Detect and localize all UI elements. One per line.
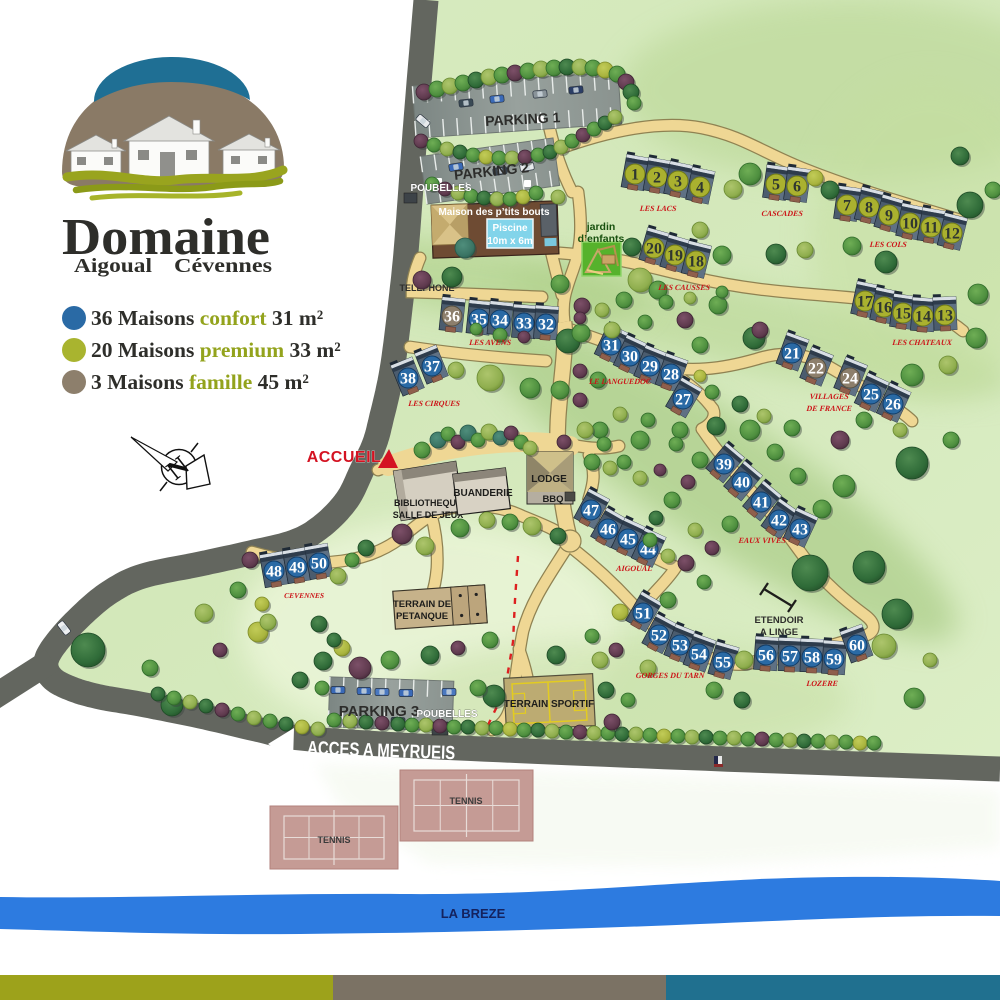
svg-text:32: 32 bbox=[538, 317, 554, 334]
svg-text:39: 39 bbox=[716, 457, 732, 474]
svg-text:LES CIRQUES: LES CIRQUES bbox=[407, 399, 461, 408]
svg-text:4: 4 bbox=[696, 180, 704, 197]
svg-text:24: 24 bbox=[842, 371, 858, 388]
svg-text:31: 31 bbox=[603, 338, 619, 355]
svg-text:POUBELLES: POUBELLES bbox=[410, 183, 471, 194]
svg-text:5: 5 bbox=[772, 177, 780, 194]
svg-text:20 Maisons premium 33 m²: 20 Maisons premium 33 m² bbox=[91, 338, 341, 362]
svg-text:DE FRANCE: DE FRANCE bbox=[805, 404, 852, 413]
svg-text:Piscine: Piscine bbox=[492, 223, 527, 234]
svg-text:BUANDERIE: BUANDERIE bbox=[453, 488, 513, 499]
svg-text:TERRAIN SPORTIF: TERRAIN SPORTIF bbox=[504, 699, 595, 710]
svg-text:LES AVENS: LES AVENS bbox=[468, 338, 512, 347]
svg-text:TENNIS: TENNIS bbox=[449, 796, 482, 806]
svg-text:52: 52 bbox=[651, 628, 667, 645]
svg-text:50: 50 bbox=[311, 556, 327, 573]
svg-text:ACCUEIL: ACCUEIL bbox=[307, 449, 382, 466]
svg-text:10: 10 bbox=[902, 216, 918, 233]
svg-text:LES CHATEAUX: LES CHATEAUX bbox=[891, 338, 953, 347]
svg-text:30: 30 bbox=[622, 349, 638, 366]
svg-text:ETENDOIR: ETENDOIR bbox=[754, 615, 803, 626]
svg-text:1: 1 bbox=[631, 167, 639, 184]
svg-text:LES COLS: LES COLS bbox=[868, 240, 907, 249]
svg-text:11: 11 bbox=[923, 220, 938, 237]
svg-text:LA BREZE: LA BREZE bbox=[441, 906, 506, 921]
svg-text:18: 18 bbox=[688, 254, 704, 271]
svg-text:6: 6 bbox=[793, 179, 801, 196]
svg-text:16: 16 bbox=[876, 300, 892, 317]
svg-text:Maison des p’tits bouts: Maison des p’tits bouts bbox=[438, 207, 550, 218]
svg-text:55: 55 bbox=[715, 655, 731, 672]
svg-text:TENNIS: TENNIS bbox=[317, 835, 350, 845]
svg-text:33: 33 bbox=[516, 316, 532, 333]
svg-text:21: 21 bbox=[784, 346, 800, 363]
svg-text:BBQ: BBQ bbox=[542, 494, 563, 505]
svg-text:57: 57 bbox=[782, 649, 798, 666]
svg-text:38: 38 bbox=[400, 371, 416, 388]
svg-text:7: 7 bbox=[843, 198, 851, 215]
svg-text:53: 53 bbox=[672, 638, 688, 655]
svg-text:19: 19 bbox=[667, 248, 683, 265]
svg-text:CASCADES: CASCADES bbox=[761, 209, 803, 218]
svg-text:51: 51 bbox=[635, 606, 651, 623]
svg-text:45: 45 bbox=[620, 532, 636, 549]
svg-text:42: 42 bbox=[771, 513, 787, 530]
svg-text:9: 9 bbox=[885, 208, 893, 225]
svg-text:37: 37 bbox=[424, 359, 440, 376]
svg-text:26: 26 bbox=[885, 397, 901, 414]
svg-text:TERRAIN DE: TERRAIN DE bbox=[393, 599, 451, 610]
svg-text:15: 15 bbox=[895, 306, 911, 323]
svg-text:34: 34 bbox=[492, 313, 508, 330]
svg-text:14: 14 bbox=[915, 309, 931, 326]
svg-text:GORGES DU TARN: GORGES DU TARN bbox=[635, 671, 706, 680]
svg-text:EAUX VIVES: EAUX VIVES bbox=[737, 536, 786, 545]
svg-text:29: 29 bbox=[642, 359, 658, 376]
svg-text:LODGE: LODGE bbox=[531, 474, 567, 485]
svg-text:27: 27 bbox=[675, 392, 691, 409]
svg-text:58: 58 bbox=[804, 650, 820, 667]
svg-text:43: 43 bbox=[792, 522, 808, 539]
svg-text:36 Maisons confort 31 m²: 36 Maisons confort 31 m² bbox=[91, 306, 323, 330]
svg-text:49: 49 bbox=[289, 560, 305, 577]
svg-text:54: 54 bbox=[691, 647, 707, 664]
svg-text:LOZERE: LOZERE bbox=[805, 679, 838, 688]
svg-text:8: 8 bbox=[865, 200, 873, 217]
svg-text:A LINGE: A LINGE bbox=[760, 627, 798, 638]
svg-text:CEVENNES: CEVENNES bbox=[284, 591, 325, 600]
svg-text:20: 20 bbox=[646, 241, 662, 258]
svg-text:40: 40 bbox=[734, 475, 750, 492]
svg-text:25: 25 bbox=[863, 387, 879, 404]
svg-text:BIBLIOTHEQUE: BIBLIOTHEQUE bbox=[394, 498, 462, 508]
svg-text:LES LACS: LES LACS bbox=[639, 204, 678, 213]
svg-text:PARKING 3: PARKING 3 bbox=[339, 703, 420, 720]
svg-text:41: 41 bbox=[753, 495, 769, 512]
svg-text:46: 46 bbox=[600, 522, 616, 539]
svg-text:56: 56 bbox=[758, 648, 774, 665]
svg-text:22: 22 bbox=[808, 361, 824, 378]
svg-text:59: 59 bbox=[826, 652, 842, 669]
svg-text:48: 48 bbox=[266, 564, 282, 581]
svg-text:17: 17 bbox=[857, 294, 873, 311]
svg-text:Cévennes: Cévennes bbox=[174, 255, 272, 277]
svg-text:36: 36 bbox=[444, 309, 460, 326]
svg-text:3: 3 bbox=[674, 174, 682, 191]
svg-text:VILLAGES: VILLAGES bbox=[809, 392, 849, 401]
svg-text:LES CAUSSES: LES CAUSSES bbox=[657, 283, 711, 292]
svg-text:28: 28 bbox=[663, 367, 679, 384]
svg-text:13: 13 bbox=[937, 308, 953, 325]
svg-text:47: 47 bbox=[583, 503, 599, 520]
svg-text:LE LANGUEDOC: LE LANGUEDOC bbox=[588, 377, 652, 386]
svg-text:10m x 6m: 10m x 6m bbox=[487, 236, 533, 247]
svg-text:3 Maisons famille 45 m²: 3 Maisons famille 45 m² bbox=[91, 370, 309, 394]
svg-text:AIGOUAL: AIGOUAL bbox=[615, 564, 653, 573]
svg-text:12: 12 bbox=[944, 226, 960, 243]
svg-text:POUBELLES: POUBELLES bbox=[416, 709, 477, 720]
svg-text:60: 60 bbox=[849, 638, 865, 655]
svg-text:2: 2 bbox=[653, 170, 661, 187]
svg-text:SALLE DE JEUX: SALLE DE JEUX bbox=[393, 510, 464, 520]
svg-text:jardin: jardin bbox=[586, 221, 616, 233]
svg-text:Aigoual: Aigoual bbox=[74, 255, 153, 277]
svg-text:d’enfants: d’enfants bbox=[578, 233, 625, 245]
svg-text:PETANQUE: PETANQUE bbox=[396, 611, 448, 622]
